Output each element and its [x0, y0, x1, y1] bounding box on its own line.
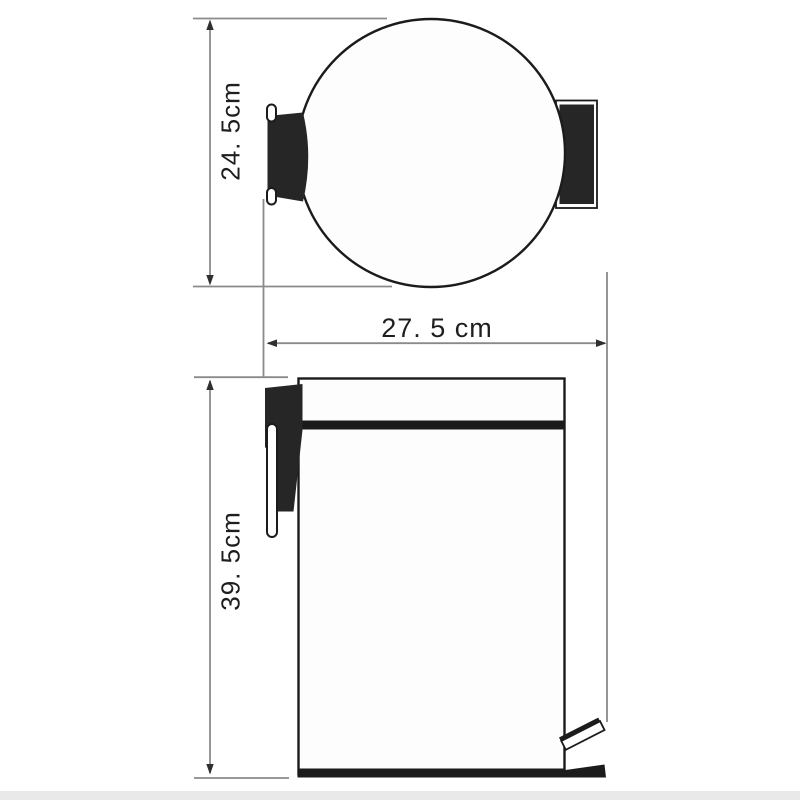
- bottom-photo-band: [0, 791, 800, 800]
- arrow-left-icon: [267, 339, 278, 347]
- waste-bin-dimension-diagram: 24. 5cm 27. 5 cm: [0, 0, 800, 800]
- lid-rim-bar: [298, 421, 566, 430]
- hinge-pin-top-icon: [267, 105, 276, 122]
- base-bar: [298, 769, 565, 778]
- dimension-drawing-canvas: 24. 5cm 27. 5 cm: [0, 0, 800, 800]
- bin-body: [299, 379, 565, 775]
- lid-circle: [297, 19, 565, 287]
- foot-pedal: [559, 718, 605, 750]
- arrow-up-icon: [206, 380, 213, 391]
- hinge-pin-bottom-icon: [267, 188, 276, 205]
- top-view: [267, 19, 597, 287]
- pedal-base-wedge: [562, 765, 606, 778]
- front-view: [265, 379, 606, 778]
- dimension-label-width: 27. 5 cm: [381, 313, 493, 343]
- pedal-rod: [267, 424, 277, 537]
- arrow-right-icon: [596, 339, 607, 347]
- arrow-down-icon: [206, 764, 213, 775]
- arrow-down-icon: [206, 275, 213, 286]
- dimension-label-front-height: 39. 5cm: [216, 511, 246, 611]
- arrow-up-icon: [206, 20, 213, 31]
- dimension-label-top-depth: 24. 5cm: [216, 81, 246, 181]
